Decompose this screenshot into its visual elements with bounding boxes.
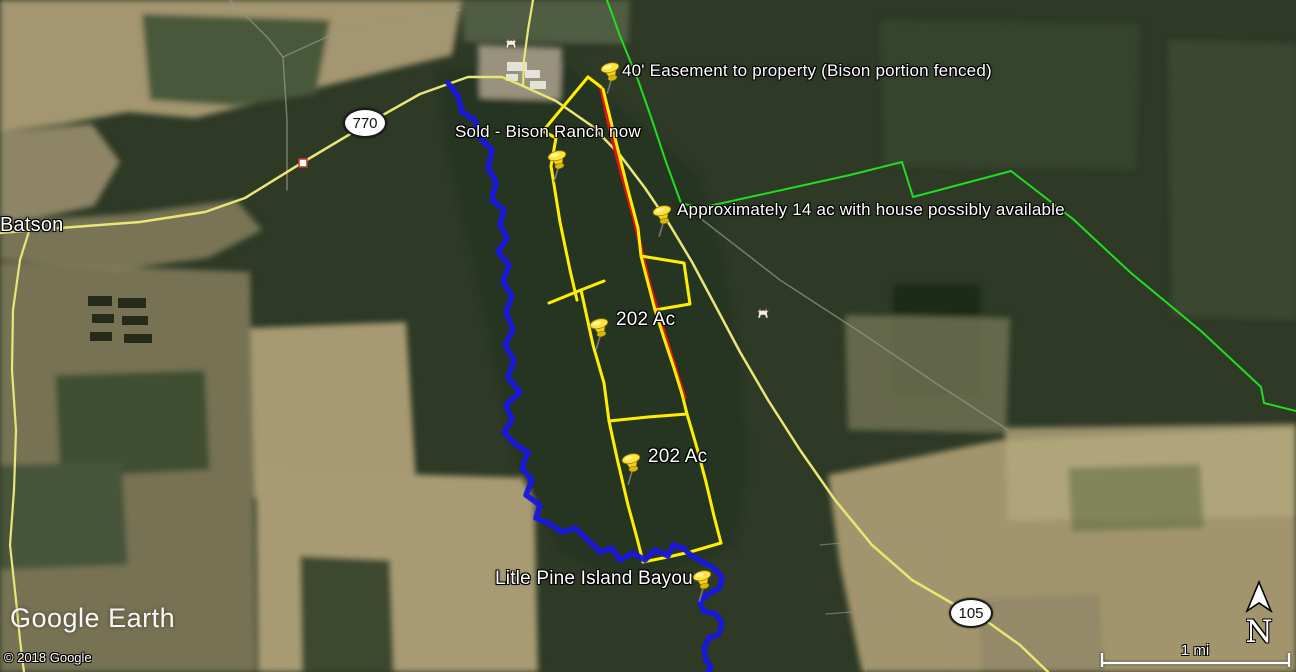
label-bayou-placemark[interactable]: Litle Pine Island Bayou	[495, 569, 693, 590]
pushpin-approx-14ac[interactable]	[649, 204, 679, 240]
placemark-overlay: Google Earth © 2018 Google N 1 mi Batson…	[0, 0, 1296, 672]
label-sold-bison-ranch[interactable]: Sold - Bison Ranch now	[455, 123, 641, 142]
label-batson-town: Batson	[0, 214, 63, 236]
pushpin-202ac-north[interactable]	[586, 317, 616, 353]
google-earth-viewport: Google Earth © 2018 Google N 1 mi Batson…	[0, 0, 1296, 672]
north-compass: N	[1236, 580, 1282, 646]
pushpin-icon	[649, 204, 679, 240]
label-approx-14ac[interactable]: Approximately 14 ac with house possibly …	[677, 201, 1065, 220]
animal-poi-icon[interactable]	[503, 35, 519, 54]
square-marker-icon[interactable]	[297, 156, 309, 174]
label-easement[interactable]: 40' Easement to property (Bison portion …	[622, 62, 992, 81]
pushpin-icon	[544, 149, 574, 185]
pushpin-icon	[618, 452, 648, 488]
label-202ac-north[interactable]: 202 Ac	[616, 310, 675, 331]
copyright-text: © 2018 Google	[4, 650, 92, 665]
scale-bracket-icon	[1095, 640, 1295, 670]
pushpin-sold-bison-ranch[interactable]	[544, 149, 574, 185]
pushpin-202ac-south[interactable]	[618, 452, 648, 488]
road-shield-105: 105	[949, 598, 993, 628]
animal-poi-icon[interactable]	[755, 305, 771, 324]
pushpin-bayou-placemark[interactable]	[689, 569, 719, 605]
north-arrow-icon	[1236, 580, 1282, 614]
pushpin-icon	[689, 569, 719, 605]
google-earth-logo: Google Earth	[10, 603, 175, 634]
pushpin-icon	[586, 317, 616, 353]
scale-bar: 1 mi	[1095, 640, 1295, 670]
label-202ac-south[interactable]: 202 Ac	[648, 447, 707, 468]
road-shield-770: 770	[343, 108, 387, 138]
